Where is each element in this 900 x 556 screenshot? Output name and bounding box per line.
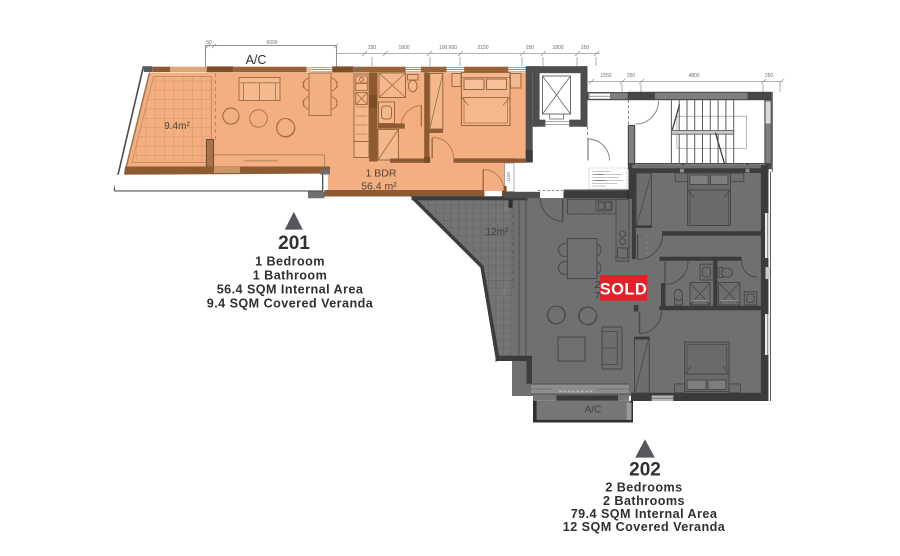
svg-text:7500: 7500 — [502, 286, 507, 297]
svg-text:A/C: A/C — [246, 53, 267, 67]
svg-text:1 BDR: 1 BDR — [366, 168, 397, 180]
svg-text:1 Bedroom: 1 Bedroom — [255, 255, 325, 269]
svg-text:56.4 SQM Internal Area: 56.4 SQM Internal Area — [217, 283, 364, 297]
svg-text:250: 250 — [368, 45, 377, 51]
svg-text:202: 202 — [629, 460, 661, 481]
svg-text:1 Bathroom: 1 Bathroom — [253, 269, 327, 283]
svg-text:79.4 SQM Internal Area: 79.4 SQM Internal Area — [571, 507, 718, 521]
svg-text:2 Bathrooms: 2 Bathrooms — [603, 494, 685, 508]
svg-text:4800: 4800 — [688, 73, 699, 79]
svg-text:250: 250 — [627, 73, 636, 79]
svg-text:250: 250 — [581, 45, 590, 51]
svg-text:1800: 1800 — [552, 45, 563, 51]
svg-text:1550: 1550 — [600, 73, 611, 79]
svg-text:1100: 1100 — [506, 172, 511, 182]
svg-text:9.4 SQM Covered Veranda: 9.4 SQM Covered Veranda — [207, 297, 374, 311]
svg-text:100 600: 100 600 — [439, 45, 457, 51]
svg-text:9.4m²: 9.4m² — [164, 121, 190, 132]
svg-text:6000: 6000 — [266, 40, 277, 46]
svg-text:12m²: 12m² — [486, 227, 509, 238]
svg-text:250: 250 — [504, 204, 509, 212]
svg-text:1800: 1800 — [398, 45, 409, 51]
svg-text:SOLD: SOLD — [600, 281, 647, 299]
svg-text:2 Bedrooms: 2 Bedrooms — [605, 481, 682, 495]
svg-text:250: 250 — [526, 45, 535, 51]
svg-text:12 SQM Covered Veranda: 12 SQM Covered Veranda — [563, 520, 726, 534]
svg-text:250: 250 — [765, 73, 774, 79]
svg-text:2150: 2150 — [477, 45, 488, 51]
svg-text:201: 201 — [278, 233, 310, 254]
svg-text:56.4 m²: 56.4 m² — [361, 181, 397, 193]
svg-text:A/C: A/C — [585, 405, 602, 416]
